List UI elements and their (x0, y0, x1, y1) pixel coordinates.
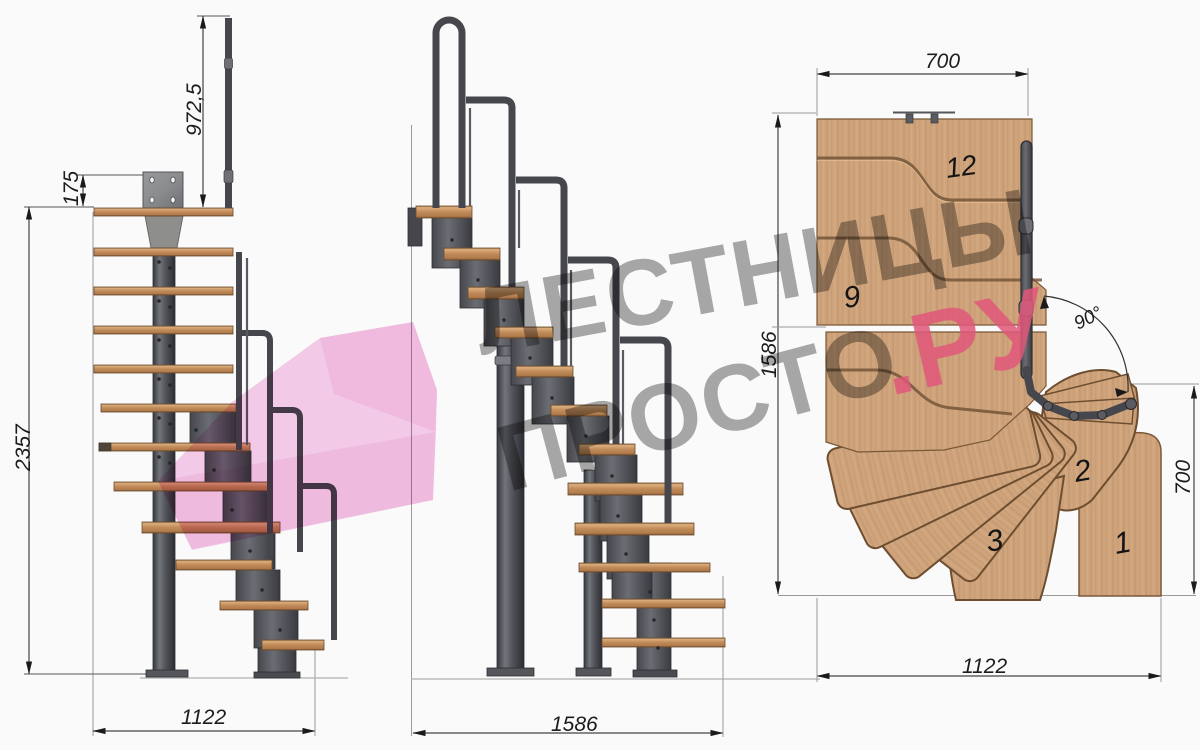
svg-text:1586: 1586 (551, 713, 598, 736)
svg-text:1122: 1122 (962, 655, 1007, 678)
svg-text:1122: 1122 (181, 706, 226, 729)
svg-text:972,5: 972,5 (183, 83, 206, 136)
svg-text:175: 175 (60, 171, 83, 206)
svg-text:2357: 2357 (12, 423, 35, 472)
svg-text:700: 700 (1172, 460, 1195, 495)
svg-text:700: 700 (925, 50, 960, 73)
